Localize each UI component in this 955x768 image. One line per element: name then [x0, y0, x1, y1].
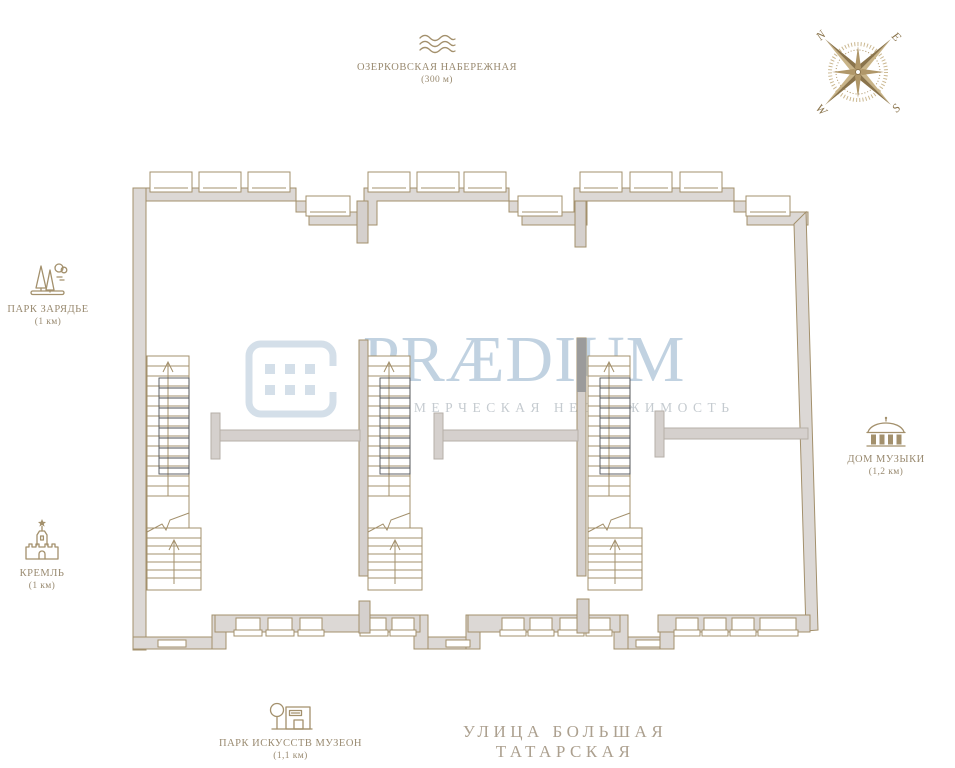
compass-west-label: W	[813, 101, 831, 119]
landmark-embankment: ОЗЕРКОВСКАЯ НАБЕРЕЖНАЯ (300 м)	[352, 32, 522, 85]
landmark-distance: (1 км)	[0, 581, 84, 591]
landmark-kremlin: КРЕМЛЬ (1 км)	[0, 518, 84, 591]
landmark-distance: (1,1 км)	[218, 751, 363, 761]
plan-left-wall	[133, 188, 146, 650]
landmark-distance: (1 км)	[2, 317, 94, 327]
stair-shaft-wall-2	[359, 340, 368, 576]
landmark-music: ДОМ МУЗЫКИ (1,2 км)	[838, 416, 934, 477]
compass-rose-icon: N E S W	[803, 20, 913, 125]
street-label: УЛИЦА БОЛЬШАЯ ТАТАРСКАЯ	[400, 722, 730, 762]
plan-top-wall	[133, 188, 808, 225]
kremlin-tower-icon	[22, 518, 62, 562]
dome-building-icon	[864, 416, 908, 448]
interior-walls	[211, 411, 808, 459]
landmark-zaryadye: ПАРК ЗАРЯДЬЕ (1 км)	[2, 258, 94, 327]
compass-east-label: E	[888, 28, 904, 44]
staircase-1	[147, 356, 201, 590]
landmark-muzeon: ПАРК ИСКУССТВ МУЗЕОН (1,1 км)	[218, 700, 363, 761]
plan-right-wall	[794, 212, 818, 631]
landmark-name: ОЗЕРКОВСКАЯ НАБЕРЕЖНАЯ	[352, 60, 522, 75]
shaft-dark-segment	[577, 338, 586, 392]
compass-north-label: N	[812, 27, 829, 44]
park-museum-icon	[268, 700, 314, 732]
landmark-name: ПАРК ЗАРЯДЬЕ	[2, 302, 94, 317]
landmark-name: ПАРК ИСКУССТВ МУЗЕОН	[218, 736, 363, 751]
staircase-2	[368, 356, 422, 590]
site-plan-page: PRÆDIUM КОММЕРЧЕСКАЯ НЕДВИЖИМОСТЬ	[0, 0, 955, 768]
landmark-distance: (300 м)	[352, 75, 522, 85]
landmark-distance: (1,2 км)	[838, 467, 934, 477]
compass-south-label: S	[889, 101, 903, 115]
landmark-name: ДОМ МУЗЫКИ	[838, 452, 934, 467]
staircase-3	[588, 356, 642, 590]
waves-icon	[417, 32, 457, 56]
landmark-name: КРЕМЛЬ	[0, 566, 84, 581]
park-trees-icon	[26, 258, 70, 298]
